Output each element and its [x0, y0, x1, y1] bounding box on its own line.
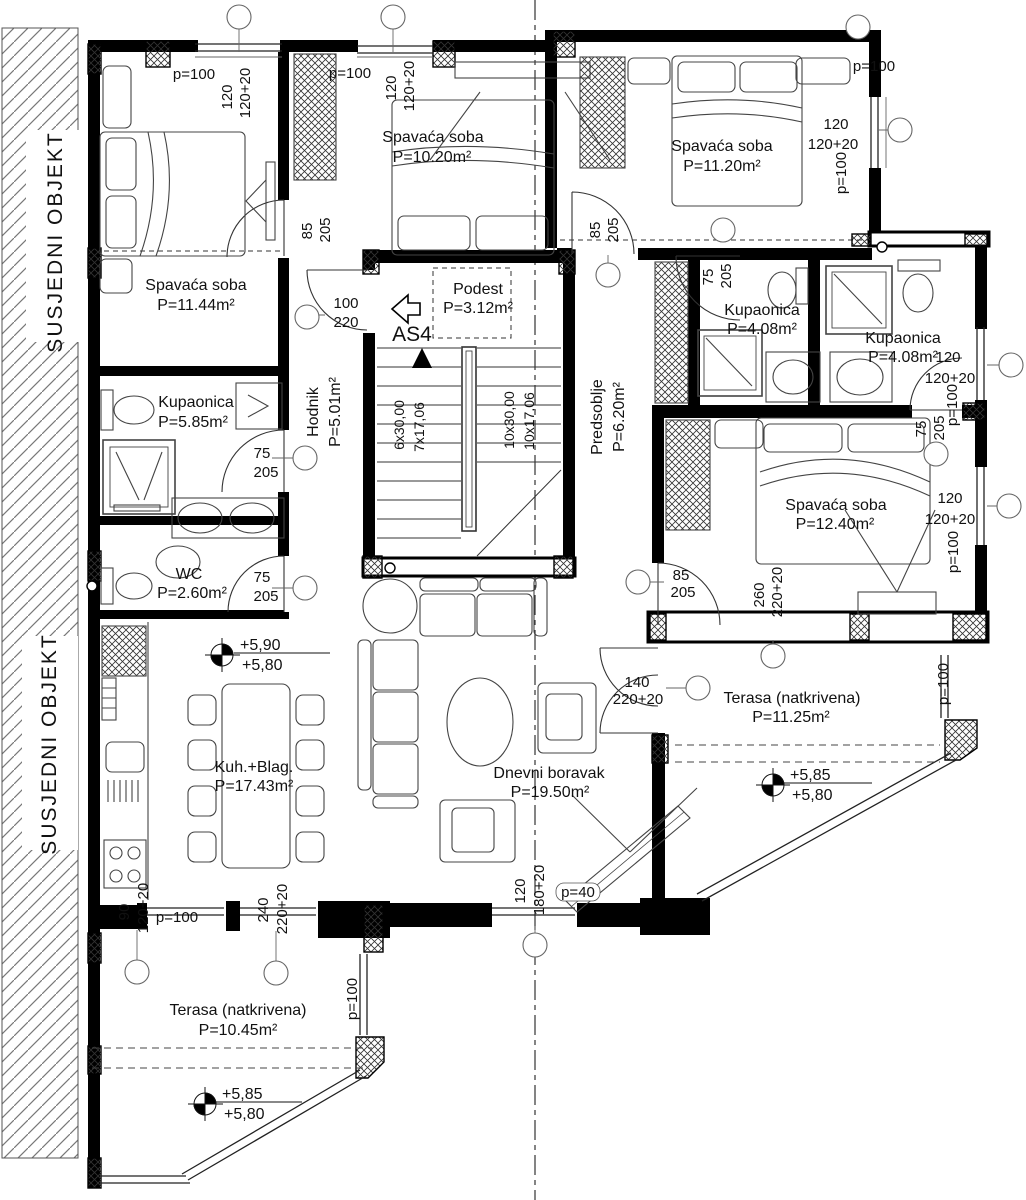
nightstand	[796, 58, 850, 84]
neighbor-object-label: SUSJEDNI OBJEKT	[44, 131, 67, 352]
level-lower: +5,80	[792, 787, 833, 804]
room-label-bedroom-4: Spavaća soba	[785, 497, 887, 514]
room-area-bedroom-3: P=11.20m²	[683, 158, 761, 175]
dim-label: 240	[255, 897, 272, 922]
dim-label: 75	[254, 569, 271, 586]
room-label-terrace-1: Terasa (natkrivena)	[724, 690, 861, 707]
level-lower: +5,80	[224, 1106, 265, 1123]
level-lower: +5,80	[242, 657, 283, 674]
room-area-terrace-2: P=10.45m²	[199, 1022, 278, 1039]
stair-rise-2: 10x17,06	[521, 392, 537, 450]
dim-label: p=100	[935, 663, 952, 705]
neighbor-object-label: SUSJEDNI OBJEKT	[38, 633, 61, 854]
blanket	[140, 132, 169, 256]
pillow	[398, 216, 470, 250]
wardrobe	[655, 262, 688, 403]
washing-machine-door	[248, 395, 268, 417]
dim-label: 100	[333, 295, 358, 312]
room-area-living: P=19.50m²	[511, 784, 590, 801]
sofa-back	[358, 640, 371, 790]
chair	[188, 695, 216, 725]
dim-label: 205	[253, 588, 278, 605]
room-label-hodnik: Hodnik	[305, 386, 322, 437]
stair-direction-arrow-icon	[412, 348, 432, 368]
toilet-tank	[898, 260, 940, 271]
sofa-seat	[420, 594, 475, 636]
sofa-seat	[373, 692, 418, 742]
room-area-bedroom-2: P=10.20m²	[393, 149, 472, 166]
as4-marker	[392, 295, 420, 323]
pillow	[764, 424, 842, 452]
room-label-predsoblje: Predsoblje	[589, 379, 606, 455]
toilet-bowl	[114, 396, 154, 424]
sofa-back	[420, 578, 478, 591]
dim-label: p=100	[833, 152, 850, 194]
fridge	[102, 626, 146, 676]
room-label-bedroom-3: Spavaća soba	[671, 138, 773, 155]
drainer	[108, 780, 138, 802]
dim-label: 85	[673, 567, 690, 584]
tv-bracket	[246, 180, 266, 222]
stair-marker-label: AS4	[392, 323, 432, 346]
coffee-table	[447, 678, 513, 766]
dim-label: p=100	[853, 58, 895, 75]
bed	[672, 56, 802, 206]
dim-label: p=40	[561, 884, 595, 901]
dim-label: 120+20	[237, 68, 254, 118]
dim-label: 220+20	[274, 884, 291, 934]
dim-label: p=100	[344, 978, 361, 1020]
stair-labels: 6x30,00 7x17,06 10x30,00 10x17,06	[391, 391, 537, 452]
room-area-wc: P=2.60m²	[157, 585, 227, 602]
chair	[188, 832, 216, 862]
dim-label: 120	[219, 84, 236, 109]
dim-label: 205	[605, 217, 622, 242]
chair	[188, 786, 216, 816]
toilet-tank	[101, 568, 113, 604]
dim-label: 205	[253, 464, 278, 481]
blanket	[672, 100, 802, 122]
dim-label: 220	[333, 314, 358, 331]
dining-table	[222, 684, 290, 868]
level-upper: +5,90	[240, 637, 281, 654]
toilet-tank	[101, 390, 113, 430]
toilet-bowl	[116, 573, 152, 599]
room-area-hodnik: P=5.01m²	[327, 376, 344, 446]
sofa-back	[480, 578, 536, 591]
room-label-kitchen: Kuh.+Blag.	[215, 759, 294, 776]
dim-label: 120+20	[135, 883, 152, 933]
as4-arrow-icon	[392, 295, 420, 323]
room-area-terrace-1: P=11.25m²	[752, 709, 830, 726]
wardrobe	[580, 57, 625, 168]
washing-machine	[236, 383, 282, 429]
bed	[100, 132, 245, 256]
sofa-seat	[373, 744, 418, 794]
dim-label: 120	[935, 349, 960, 366]
dim-label: 120	[512, 878, 529, 903]
stair-run-2: 10x30,00	[501, 391, 517, 449]
dim-label: 140	[624, 674, 649, 691]
sofa-seat	[373, 640, 418, 690]
pillow	[740, 62, 797, 92]
stair-rise-1: 7x17,06	[411, 402, 427, 452]
room-label-podest: Podest	[453, 281, 503, 298]
pillow	[106, 196, 136, 248]
room-label-bedroom-1: Spavaća soba	[145, 277, 247, 294]
room-label-wc: WC	[176, 566, 203, 583]
shower	[103, 440, 175, 514]
dim-label: p=100	[329, 65, 371, 82]
dim-label: 120+20	[925, 511, 975, 528]
dim-label: 180+20	[531, 865, 548, 915]
sink	[773, 360, 813, 394]
room-label-terrace-2: Terasa (natkrivena)	[170, 1002, 307, 1019]
floor-plan-drawing: SUSJEDNI OBJEKT SUSJEDNI OBJEKT Spavaća …	[0, 0, 1026, 1200]
toilet-bowl	[903, 274, 933, 312]
dim-label: 120	[937, 490, 962, 507]
nightstand	[103, 66, 131, 128]
room-label-kupaonica-1: Kupaonica	[158, 394, 234, 411]
dim-label: 85	[587, 222, 604, 239]
neighbor-band	[2, 28, 82, 1158]
dim-label: 75	[254, 445, 271, 462]
dim-label: 220+20	[613, 691, 663, 708]
level-upper: +5,85	[222, 1086, 263, 1103]
toilet-tank	[796, 268, 808, 304]
cabinet	[102, 678, 116, 720]
armchair	[440, 800, 515, 862]
chair	[296, 786, 324, 816]
dim-label: 220+20	[769, 567, 786, 617]
dim-label: 120+20	[808, 136, 858, 153]
stove	[104, 840, 146, 888]
room-area-kupaonica-3: P=4.08m²	[868, 349, 938, 366]
dim-label: p=100	[173, 66, 215, 83]
stair-run-1: 6x30,00	[391, 400, 407, 450]
wardrobe	[666, 420, 710, 530]
dim-label: 75	[700, 269, 717, 286]
nightstand	[628, 58, 670, 84]
sofa-arm	[373, 796, 418, 808]
dim-label: 205	[931, 415, 948, 440]
dim-label: 120+20	[401, 61, 418, 111]
dim-label: 85	[299, 223, 316, 240]
dim-label: 205	[718, 263, 735, 288]
pillow	[106, 138, 136, 190]
pillow	[678, 62, 735, 92]
room-area-podest: P=3.12m²	[443, 300, 513, 317]
dim-label: 120	[383, 75, 400, 100]
room-label-kupaonica-2: Kupaonica	[724, 302, 800, 319]
kitchen-sink	[106, 742, 144, 772]
room-area-kupaonica-1: P=5.85m²	[158, 414, 228, 431]
bed	[756, 418, 930, 564]
room-area-predsoblje: P=6.20m²	[611, 381, 628, 451]
nightstand	[100, 259, 132, 293]
bed	[392, 100, 554, 255]
level-upper: +5,85	[790, 767, 831, 784]
blanket	[760, 459, 930, 496]
sofa-corner	[363, 579, 417, 633]
chair	[296, 695, 324, 725]
dim-label: 120	[823, 116, 848, 133]
room-area-bedroom-1: P=11.44m²	[157, 297, 235, 314]
chair	[296, 832, 324, 862]
chair	[188, 740, 216, 770]
room-label-kupaonica-3: Kupaonica	[865, 330, 941, 347]
dim-label: 205	[317, 217, 334, 242]
room-area-kupaonica-2: P=4.08m²	[727, 321, 797, 338]
dim-label: 90	[116, 904, 133, 921]
dim-label: 260	[751, 582, 768, 607]
pillow	[476, 216, 548, 250]
room-label-living: Dnevni boravak	[493, 765, 605, 782]
floor-plan: SUSJEDNI OBJEKT SUSJEDNI OBJEKT Spavaća …	[0, 0, 1026, 1200]
door	[222, 192, 962, 733]
dim-label: 205	[670, 584, 695, 601]
dim-label: p=100	[156, 909, 198, 926]
dim-label: 75	[913, 421, 930, 438]
room-area-bedroom-4: P=12.40m²	[796, 516, 875, 533]
room-label-bedroom-2: Spavaća soba	[382, 129, 484, 146]
dim-label: p=100	[945, 531, 962, 573]
chair	[296, 740, 324, 770]
room-area-kitchen: P=17.43m²	[215, 778, 294, 795]
tv-console	[455, 62, 590, 78]
sofa-seat	[477, 594, 532, 636]
